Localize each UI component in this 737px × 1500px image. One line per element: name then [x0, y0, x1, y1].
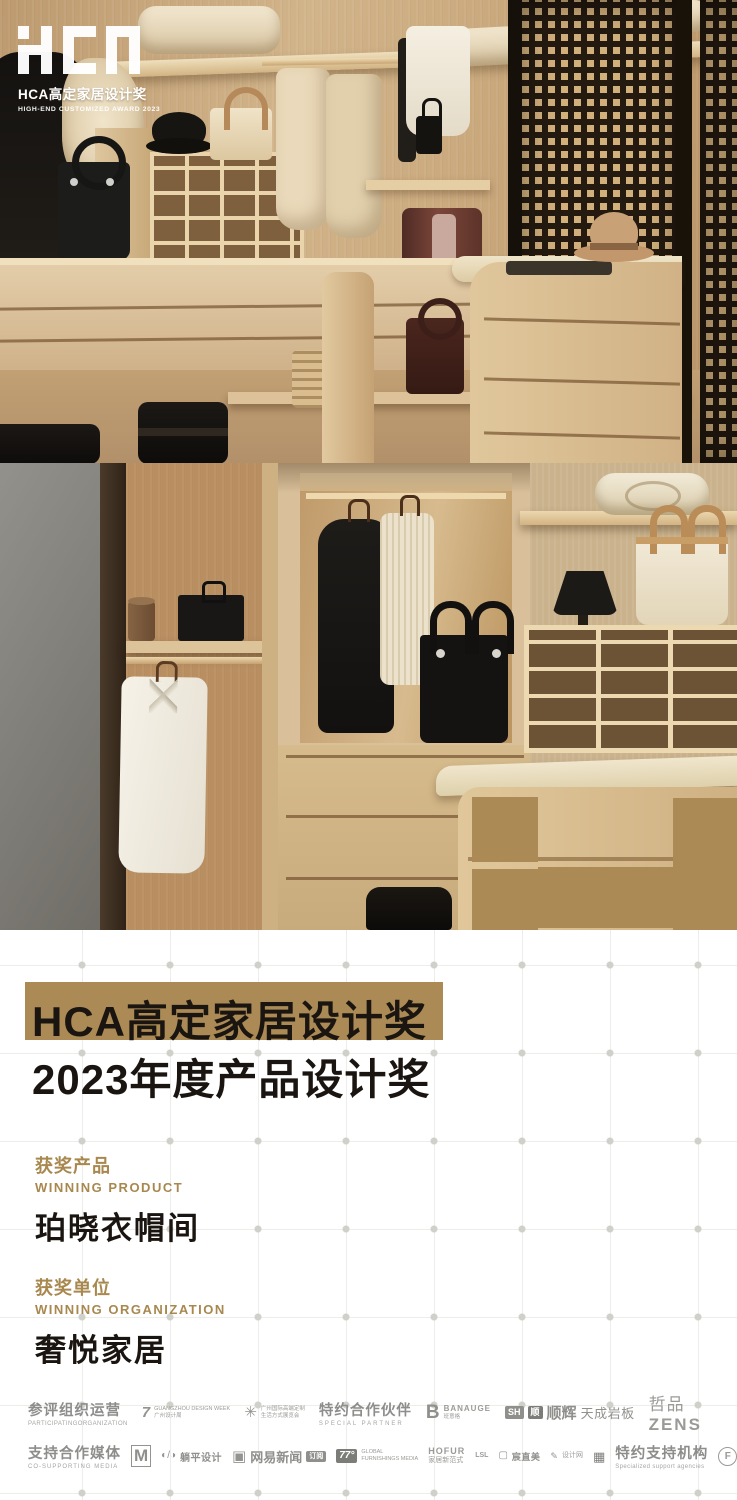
award-poster: HCA高定家居设计奖 HIGH-END CUSTOMIZED AWARD 202… [0, 0, 737, 1500]
co-supporting-media-label: 支持合作媒体 CO-SUPPORTING MEDIA [28, 1442, 121, 1470]
hat-box [0, 424, 100, 463]
black-tote-bag [420, 635, 508, 743]
metal-mesh-screen [700, 0, 737, 463]
hca-logo: HCA高定家居设计奖 HIGH-END CUSTOMIZED AWARD 202… [18, 26, 168, 113]
award-details: 获奖产品 WINNING PRODUCT 珀晓衣帽间 获奖单位 WINNING … [35, 1152, 226, 1370]
glass-inlay [506, 261, 612, 275]
special-support-label: 特约支持机构 Specialized support agencies [615, 1442, 708, 1470]
hca-logo-cn: HCA高定家居设计奖 [18, 83, 168, 103]
winning-org-label-cn: 获奖单位 [35, 1274, 226, 1300]
drawer-seam [484, 431, 680, 439]
footer-row-media: 支持合作媒体 CO-SUPPORTING MEDIA M ◐/◑ 躺平设计 ▣ … [28, 1442, 727, 1470]
expo-logo: ✳ 广州国际高端定制生活方式展览会 [244, 1405, 305, 1420]
design-week-icon: 7 [142, 1405, 150, 1420]
footer-row-organizers: 参评组织运营 PARTICIPATINGORGANIZATION 7 GUANG… [28, 1390, 727, 1435]
top-shadow [278, 463, 532, 493]
zens-logo: 哲品ZENS [649, 1390, 727, 1435]
hca-logo-en: HIGH-END CUSTOMIZED AWARD 2023 [18, 106, 168, 113]
tote-rim [636, 537, 728, 544]
island-dresser [470, 262, 682, 463]
winning-org-name: 奢悦家居 [35, 1325, 226, 1370]
drawer-seam [484, 317, 680, 325]
banauge-logo: B BANAUGE班意格 [426, 1402, 491, 1424]
white-shirt [118, 676, 207, 873]
h-top-square [472, 797, 538, 862]
award-info-section: HCA高定家居设计奖 2023年度产品设计奖 获奖产品 WINNING PROD… [0, 930, 737, 1500]
maroon-handbag [406, 318, 464, 394]
closet-photo-bottom [0, 463, 737, 930]
small-shelf [366, 180, 490, 190]
banauge-icon: B [426, 1402, 440, 1424]
cream-tote-bag [636, 537, 728, 625]
design-site-logo: ✎ 设计网 [550, 1452, 583, 1461]
cream-blouse [276, 68, 330, 230]
winning-product-label-en: WINNING PRODUCT [35, 1180, 226, 1195]
panshi-icon: F [718, 1447, 737, 1466]
shunhui-logo: SH 顺 顺辉 天成岩板 [505, 1402, 635, 1423]
small-hanging-bag [416, 116, 442, 154]
fedora-hat [590, 212, 638, 252]
chen-icon: ▢ [498, 1451, 507, 1461]
left-shelf [126, 641, 280, 653]
cream-blouse [326, 74, 382, 238]
gray-wall [0, 463, 102, 930]
hofur-logo: HOFUR家居新范式 [428, 1446, 465, 1466]
m-media-logo: M [131, 1445, 151, 1467]
special-partner-label: 特约合作伙伴 SPECIAL PARTNER [319, 1399, 412, 1427]
guangzhou-design-week-logo: 7 GUANGZHOU DESIGN WEEK广州设计周 [142, 1405, 230, 1420]
starburst-icon: ✳ [244, 1405, 257, 1420]
hanging-rod [126, 657, 280, 664]
lsl-logo: LSL [475, 1452, 488, 1461]
netease-icon: ▣ [232, 1449, 246, 1464]
poster-title-line2: 2023年度产品设计奖 [32, 1046, 430, 1107]
design-site-icon: ✎ [550, 1452, 558, 1461]
chenzhimei-logo: ▢ 宸直美 [498, 1450, 540, 1463]
bucket-hat [152, 112, 206, 146]
h-crossbar [538, 867, 673, 928]
hca-logo-letters [18, 26, 140, 74]
shun-badge: 顺 [528, 1406, 543, 1419]
sh-badge: SH [505, 1406, 524, 1419]
black-handbag [58, 162, 130, 260]
pixel-icon: ▦ [593, 1450, 605, 1463]
winning-product-label-cn: 获奖产品 [35, 1152, 226, 1178]
tangping-icon: ◐/◑ [161, 1451, 176, 1461]
cubby-shelves [524, 625, 737, 753]
cream-tote-bag [210, 108, 272, 160]
winning-org-label-en: WINNING ORGANIZATION [35, 1302, 226, 1317]
drawer-seam [286, 755, 524, 758]
leather-box [128, 601, 155, 641]
drawer-seam [484, 377, 680, 385]
bag-grommets [436, 649, 445, 658]
winning-product-name: 珀晓衣帽间 [35, 1203, 226, 1248]
hat-box [138, 402, 228, 463]
panshi-media-logo: F MEDIA [718, 1447, 737, 1466]
tangping-design-logo: ◐/◑ 躺平设计 [161, 1449, 222, 1464]
black-box-bag [178, 595, 244, 641]
participating-organization-label: 参评组织运营 PARTICIPATINGORGANIZATION [28, 1399, 128, 1427]
closet-photo-top: HCA高定家居设计奖 HIGH-END CUSTOMIZED AWARD 202… [0, 0, 737, 463]
poster-title-line1: HCA高定家居设计奖 [32, 988, 427, 1049]
pixel-media-logo: ▦ [593, 1450, 605, 1463]
black-stool [366, 887, 452, 930]
netease-news-logo: ▣ 网易新闻 订阅 [232, 1447, 326, 1466]
rolled-towel [595, 473, 709, 515]
global-furnishings-media-logo: 77° GLOBALFURNISHINGS MEDIA [336, 1449, 418, 1463]
table-leg [322, 272, 374, 463]
